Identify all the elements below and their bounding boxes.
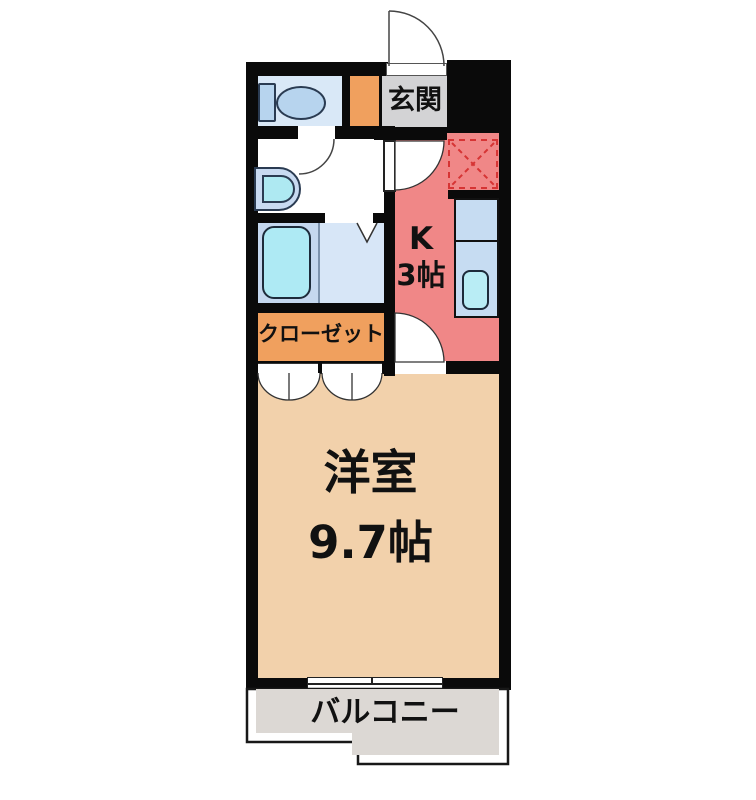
kitchen-label-size: 3帖 bbox=[392, 260, 450, 292]
refrigerator-x-line-2 bbox=[452, 143, 494, 185]
entrance-label: 玄関 bbox=[384, 86, 446, 116]
kitchen-room-door-swing bbox=[395, 313, 444, 362]
floor-plan-canvas: 玄関 K 3帖 クローゼット 洋室 9.7帖 バルコニー bbox=[0, 0, 756, 800]
western-room-label: 洋室 9.7帖 bbox=[248, 448, 493, 567]
western-room-name: 洋室 bbox=[248, 448, 493, 500]
closet-label: クローゼット bbox=[258, 323, 384, 346]
western-room-size: 9.7帖 bbox=[248, 518, 493, 568]
plan-linework bbox=[0, 0, 756, 800]
kitchen-label: K 3帖 bbox=[392, 222, 450, 292]
toilet-door-arc bbox=[299, 139, 334, 174]
bathroom-folding-door-icon bbox=[357, 223, 377, 242]
balcony-label: バルコニー bbox=[265, 696, 505, 729]
entrance-kitchen-door-swing bbox=[395, 141, 444, 190]
entrance-door-arc bbox=[389, 11, 444, 66]
kitchen-label-k: K bbox=[392, 222, 450, 256]
